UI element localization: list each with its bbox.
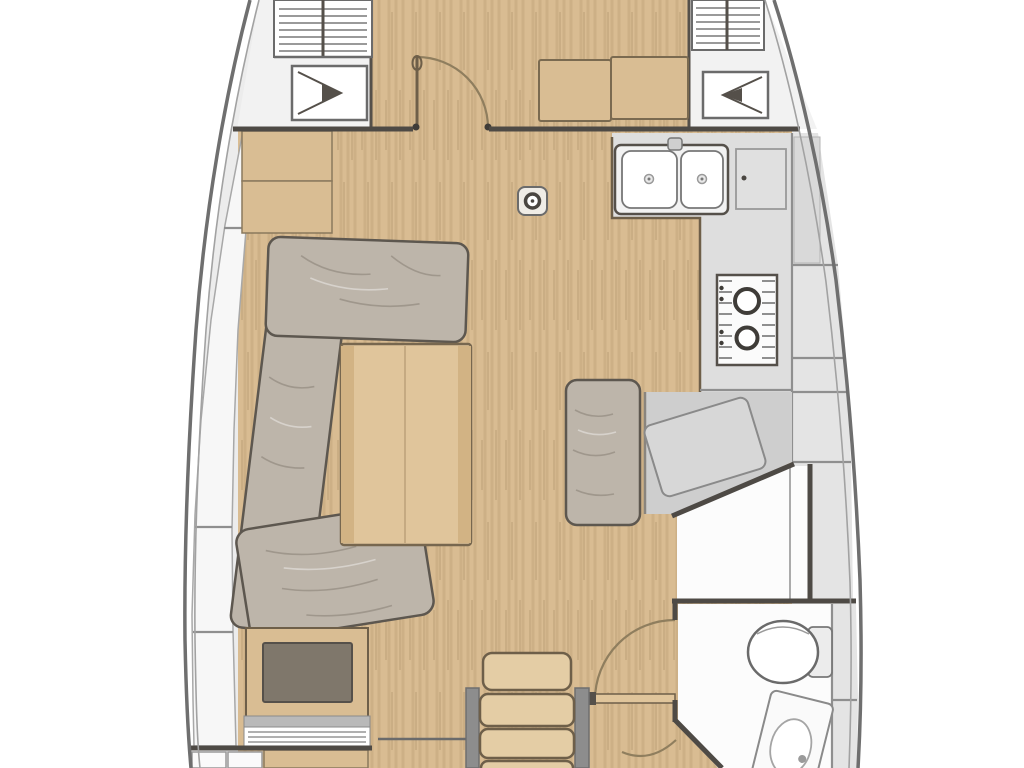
- burner-icon: [737, 328, 758, 349]
- step: [481, 761, 573, 768]
- yacht-floorplan: [0, 0, 1024, 768]
- deck-hatch-left: [274, 0, 372, 57]
- mast-step: [518, 187, 547, 215]
- faucet-icon: [668, 138, 682, 150]
- port-aft-cabinet: [244, 628, 370, 747]
- floorplan-canvas: [0, 0, 1024, 768]
- aft-port-lockers: [192, 750, 368, 768]
- step: [483, 653, 571, 690]
- step: [480, 694, 574, 726]
- head-door-leaf: [594, 694, 675, 703]
- salon-table: [341, 344, 471, 545]
- hatch-symbol-left: [292, 66, 367, 120]
- forward-bench: [539, 57, 688, 121]
- handle-dot-icon: [742, 176, 747, 181]
- galley-sink: [615, 138, 728, 214]
- cabinet-inset: [263, 643, 352, 702]
- hatch-symbol-right: [703, 72, 768, 118]
- step: [480, 729, 574, 758]
- burner-icon: [735, 289, 759, 313]
- nav-seat: [566, 380, 640, 525]
- step-rail: [466, 688, 479, 768]
- galley-stove: [717, 275, 777, 365]
- port-console: [242, 131, 332, 233]
- step-rail: [575, 688, 589, 768]
- deck-hatch-right: [692, 0, 764, 50]
- toilet: [748, 621, 832, 683]
